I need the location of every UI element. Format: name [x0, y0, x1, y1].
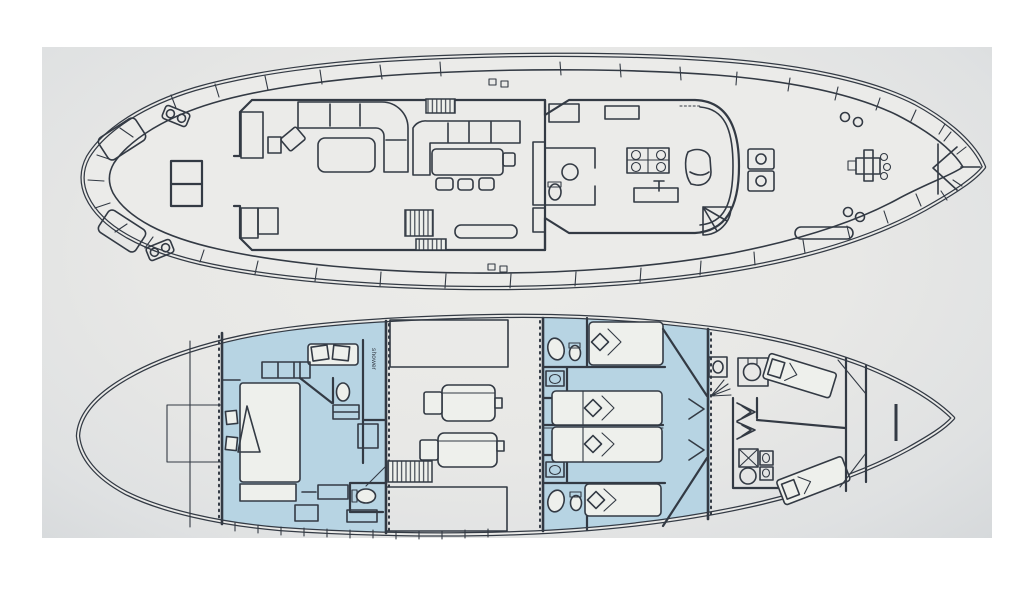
tank-aft [386, 487, 507, 531]
scanned-page: shower [0, 0, 1024, 600]
stairs-up [426, 99, 455, 113]
pillow [225, 437, 237, 451]
upper-deck-plan [83, 55, 984, 288]
pullman-berths [737, 403, 755, 439]
forepeak [838, 358, 896, 491]
guest-bed-1 [589, 322, 663, 365]
crew-quarters [709, 353, 851, 505]
crew-berth-forward-port [762, 353, 837, 398]
engine-room-stairs [388, 461, 432, 482]
engine-room [386, 320, 508, 531]
shower-spray [711, 380, 731, 396]
guest-bed-3 [552, 427, 662, 462]
tank-forward [390, 320, 508, 367]
pillow [225, 410, 237, 424]
stairs-down [405, 210, 433, 236]
crew-cabinet [739, 449, 773, 484]
foot-bench [240, 484, 296, 501]
stairs-down-lower [416, 239, 446, 250]
crew-toilet [709, 357, 731, 396]
shower-label: shower [370, 348, 377, 371]
guest-bed-2 [552, 391, 662, 425]
crew-berth-forward-starboard [776, 456, 851, 505]
guest-bed-4 [585, 484, 661, 516]
port-engine [424, 385, 502, 421]
deck-plan-drawing: shower [0, 0, 1024, 600]
master-sofa [308, 344, 358, 365]
lower-deck-plan: shower [78, 310, 953, 540]
hull-outline [78, 316, 953, 539]
